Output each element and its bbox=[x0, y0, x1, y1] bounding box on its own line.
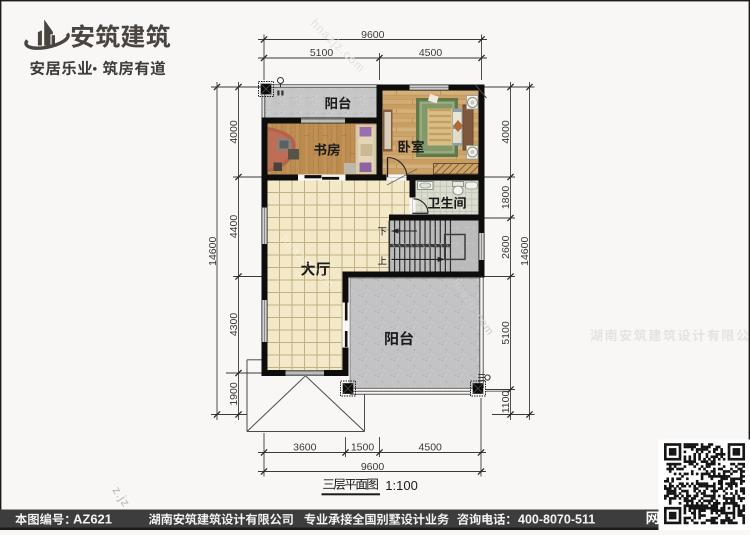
svg-text:1100: 1100 bbox=[500, 391, 512, 414]
svg-text:400-8070-511: 400-8070-511 bbox=[518, 512, 595, 526]
svg-text:9600: 9600 bbox=[361, 29, 385, 41]
svg-text:4000: 4000 bbox=[500, 120, 512, 144]
svg-text:4300: 4300 bbox=[228, 313, 240, 337]
svg-text:5100: 5100 bbox=[310, 47, 334, 59]
svg-text:4500: 4500 bbox=[419, 442, 443, 454]
svg-text:14600: 14600 bbox=[519, 237, 531, 266]
svg-text:1:100: 1:100 bbox=[385, 478, 418, 493]
svg-text:4000: 4000 bbox=[228, 120, 240, 144]
svg-text:3600: 3600 bbox=[293, 442, 317, 454]
svg-text:AZ621: AZ621 bbox=[73, 511, 112, 526]
svg-text:4500: 4500 bbox=[419, 47, 443, 59]
svg-text:14600: 14600 bbox=[207, 237, 219, 266]
svg-text:5100: 5100 bbox=[500, 321, 512, 345]
svg-text:9600: 9600 bbox=[361, 461, 385, 473]
svg-text:2600: 2600 bbox=[500, 235, 512, 259]
svg-text:1500: 1500 bbox=[351, 442, 375, 454]
svg-text:1800: 1800 bbox=[500, 186, 512, 210]
svg-text:4400: 4400 bbox=[228, 215, 240, 239]
svg-text:1900: 1900 bbox=[228, 382, 240, 406]
